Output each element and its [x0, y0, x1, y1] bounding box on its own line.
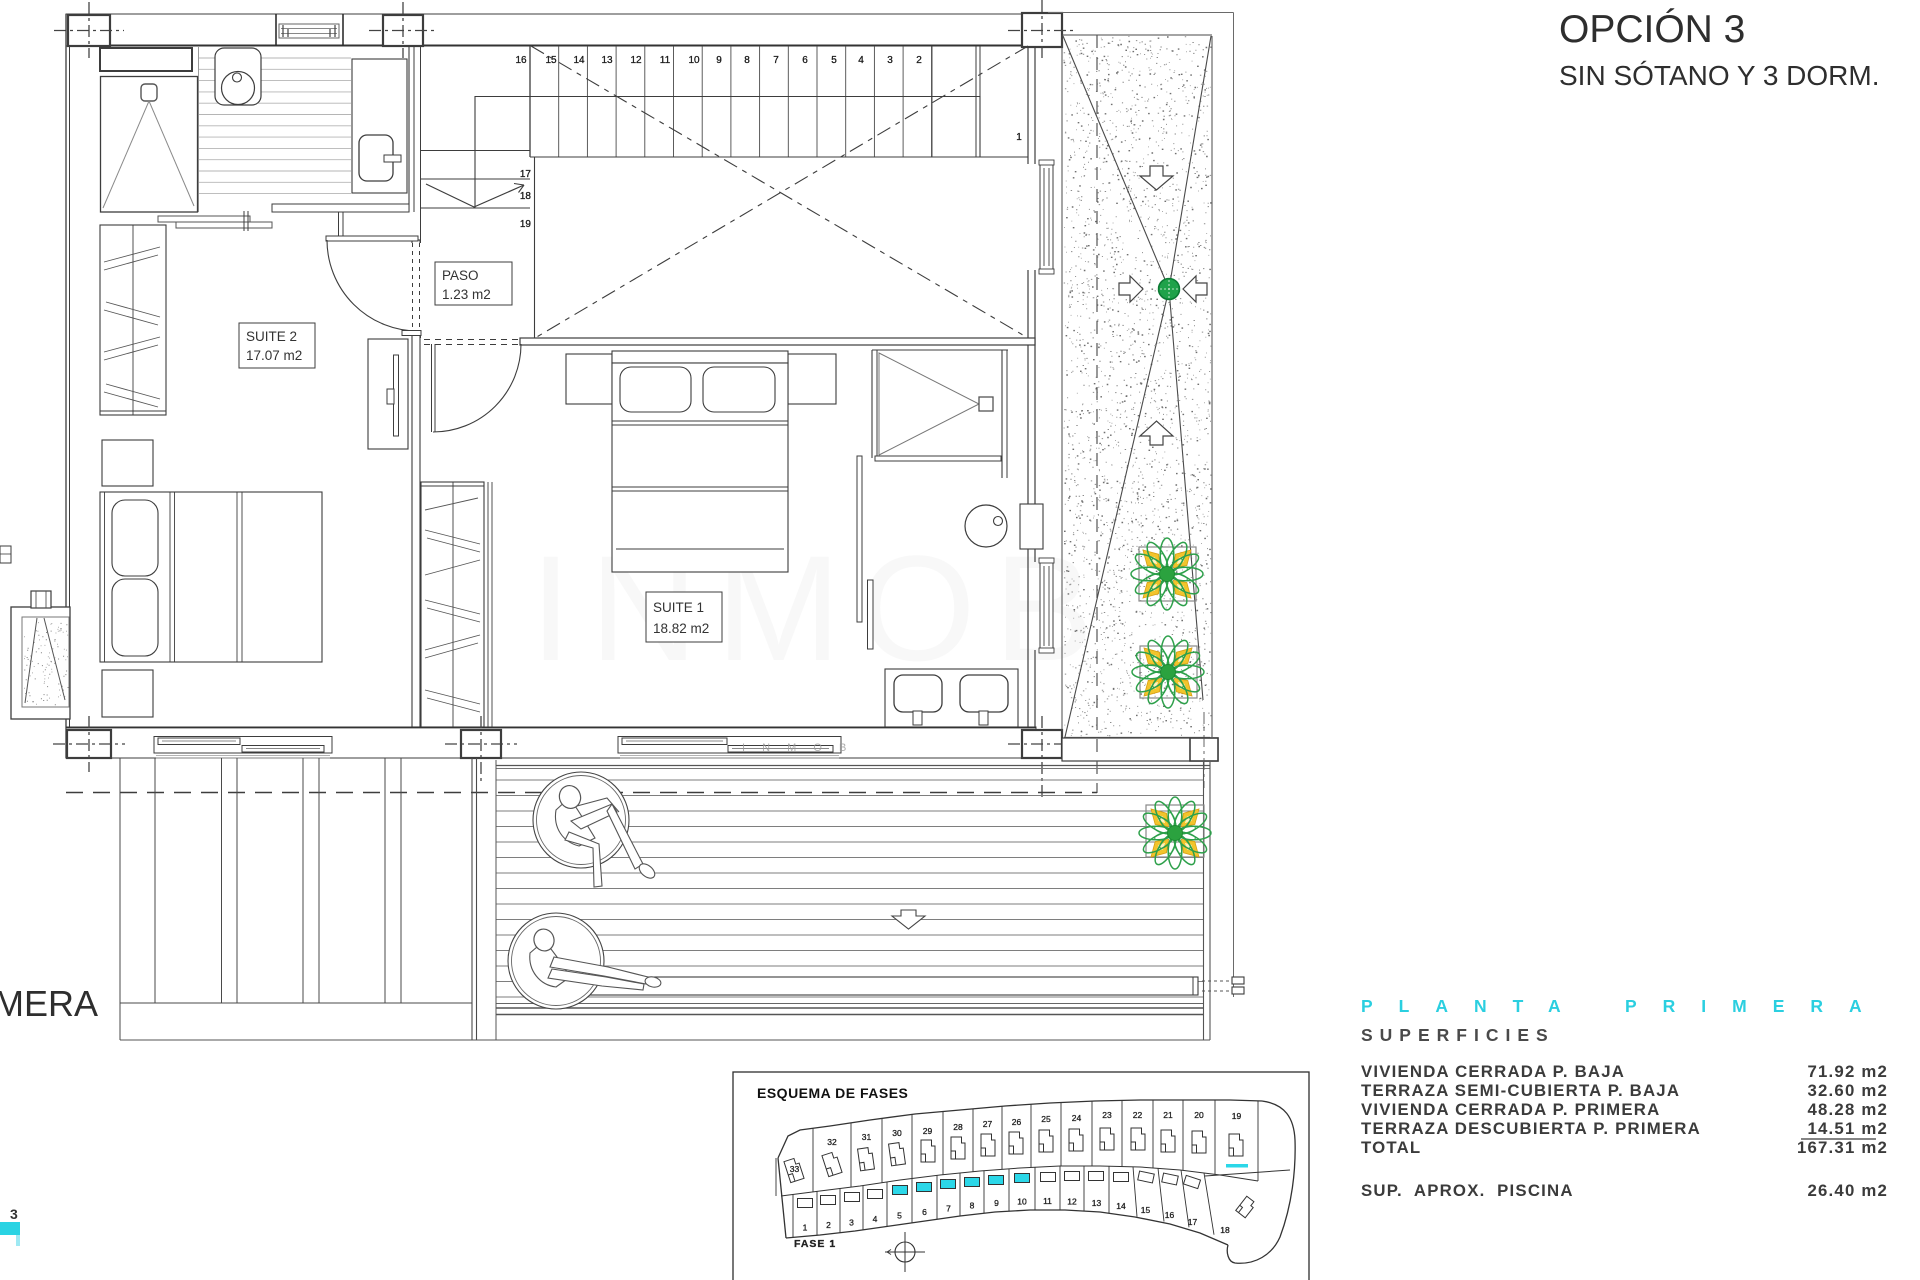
- svg-text:TERRAZA DESCUBIERTA P. PRIMERA: TERRAZA DESCUBIERTA P. PRIMERA: [1361, 1119, 1701, 1138]
- svg-text:MERA: MERA: [0, 983, 98, 1024]
- svg-text:PLANTA: PLANTA: [1361, 996, 1587, 1016]
- svg-text:3: 3: [849, 1217, 854, 1227]
- svg-text:10: 10: [688, 55, 700, 66]
- svg-text:23: 23: [1102, 1110, 1112, 1120]
- svg-text:31: 31: [862, 1132, 872, 1142]
- svg-text:20: 20: [1194, 1110, 1204, 1120]
- svg-text:32: 32: [827, 1137, 837, 1147]
- svg-text:17.07 m2: 17.07 m2: [246, 348, 302, 363]
- svg-text:5: 5: [897, 1211, 902, 1221]
- svg-text:6: 6: [922, 1207, 927, 1217]
- svg-text:19: 19: [520, 219, 532, 230]
- svg-text:25: 25: [1041, 1114, 1051, 1124]
- svg-text:FASE 1: FASE 1: [794, 1238, 836, 1250]
- svg-text:26: 26: [1012, 1117, 1022, 1127]
- svg-text:3: 3: [887, 55, 893, 66]
- svg-text:8: 8: [744, 55, 750, 66]
- svg-text:13: 13: [601, 55, 613, 66]
- svg-text:2: 2: [826, 1220, 831, 1230]
- svg-text:26.40 m2: 26.40 m2: [1807, 1181, 1888, 1200]
- svg-text:17: 17: [520, 169, 532, 180]
- svg-text:48.28 m2: 48.28 m2: [1807, 1100, 1888, 1119]
- svg-text:SUPERFICIES: SUPERFICIES: [1361, 1025, 1555, 1045]
- svg-text:13: 13: [1092, 1198, 1102, 1208]
- svg-text:SIN SÓTANO Y 3 DORM.: SIN SÓTANO Y 3 DORM.: [1559, 60, 1880, 91]
- svg-text:2: 2: [916, 55, 922, 66]
- svg-text:12: 12: [630, 55, 642, 66]
- svg-text:167.31 m2: 167.31 m2: [1797, 1138, 1888, 1157]
- svg-text:11: 11: [660, 55, 671, 66]
- svg-text:SUITE 1: SUITE 1: [653, 600, 704, 615]
- svg-text:4: 4: [873, 1214, 878, 1224]
- svg-text:6: 6: [802, 55, 808, 66]
- svg-text:15: 15: [545, 55, 557, 66]
- svg-text:I N M O B: I N M O B: [742, 742, 853, 754]
- svg-text:PRIMERA: PRIMERA: [1625, 996, 1888, 1016]
- svg-text:29: 29: [923, 1126, 933, 1136]
- svg-text:9: 9: [994, 1198, 999, 1208]
- svg-text:7: 7: [773, 55, 779, 66]
- svg-text:3: 3: [10, 1206, 18, 1222]
- svg-text:18: 18: [520, 191, 532, 202]
- svg-text:24: 24: [1072, 1113, 1082, 1123]
- svg-text:TOTAL: TOTAL: [1361, 1138, 1421, 1157]
- svg-text:7: 7: [946, 1204, 951, 1214]
- svg-text:28: 28: [953, 1122, 963, 1132]
- svg-text:12: 12: [1067, 1196, 1077, 1206]
- svg-text:18.82 m2: 18.82 m2: [653, 621, 709, 636]
- svg-text:32.60 m2: 32.60 m2: [1807, 1081, 1888, 1100]
- svg-text:8: 8: [970, 1201, 975, 1211]
- svg-text:71.92 m2: 71.92 m2: [1807, 1062, 1888, 1081]
- svg-text:1: 1: [1016, 132, 1022, 143]
- svg-text:4: 4: [858, 55, 864, 66]
- svg-text:ESQUEMA DE FASES: ESQUEMA DE FASES: [757, 1085, 908, 1101]
- svg-text:15: 15: [1141, 1205, 1151, 1215]
- svg-text:OPCIÓN 3: OPCIÓN 3: [1559, 8, 1745, 51]
- svg-text:27: 27: [983, 1119, 993, 1129]
- svg-text:TERRAZA SEMI-CUBIERTA P. BAJA: TERRAZA SEMI-CUBIERTA P. BAJA: [1361, 1081, 1680, 1100]
- svg-text:9: 9: [716, 55, 722, 66]
- svg-text:17: 17: [1188, 1217, 1198, 1227]
- svg-text:5: 5: [831, 55, 837, 66]
- svg-text:22: 22: [1133, 1110, 1143, 1120]
- svg-text:VIVIENDA CERRADA P. BAJA: VIVIENDA CERRADA P. BAJA: [1361, 1062, 1625, 1081]
- svg-text:VIVIENDA CERRADA P. PRIMERA: VIVIENDA CERRADA P. PRIMERA: [1361, 1100, 1660, 1119]
- svg-text:14.51 m2: 14.51 m2: [1807, 1119, 1888, 1138]
- svg-text:18: 18: [1220, 1225, 1230, 1235]
- svg-text:19: 19: [1232, 1111, 1242, 1121]
- svg-text:21: 21: [1163, 1110, 1173, 1120]
- svg-text:14: 14: [573, 55, 585, 66]
- svg-text:1.23 m2: 1.23 m2: [442, 287, 491, 302]
- svg-text:33: 33: [790, 1164, 800, 1174]
- svg-text:PASO: PASO: [442, 268, 479, 283]
- svg-text:14: 14: [1116, 1201, 1126, 1211]
- svg-text:1: 1: [803, 1222, 808, 1232]
- svg-text:16: 16: [515, 55, 527, 66]
- svg-text:10: 10: [1017, 1197, 1027, 1207]
- svg-text:11: 11: [1043, 1196, 1052, 1206]
- svg-text:SUP. APROX. PISCINA: SUP. APROX. PISCINA: [1361, 1181, 1574, 1200]
- svg-text:30: 30: [892, 1128, 902, 1138]
- svg-text:16: 16: [1165, 1210, 1175, 1220]
- svg-text:SUITE 2: SUITE 2: [246, 329, 297, 344]
